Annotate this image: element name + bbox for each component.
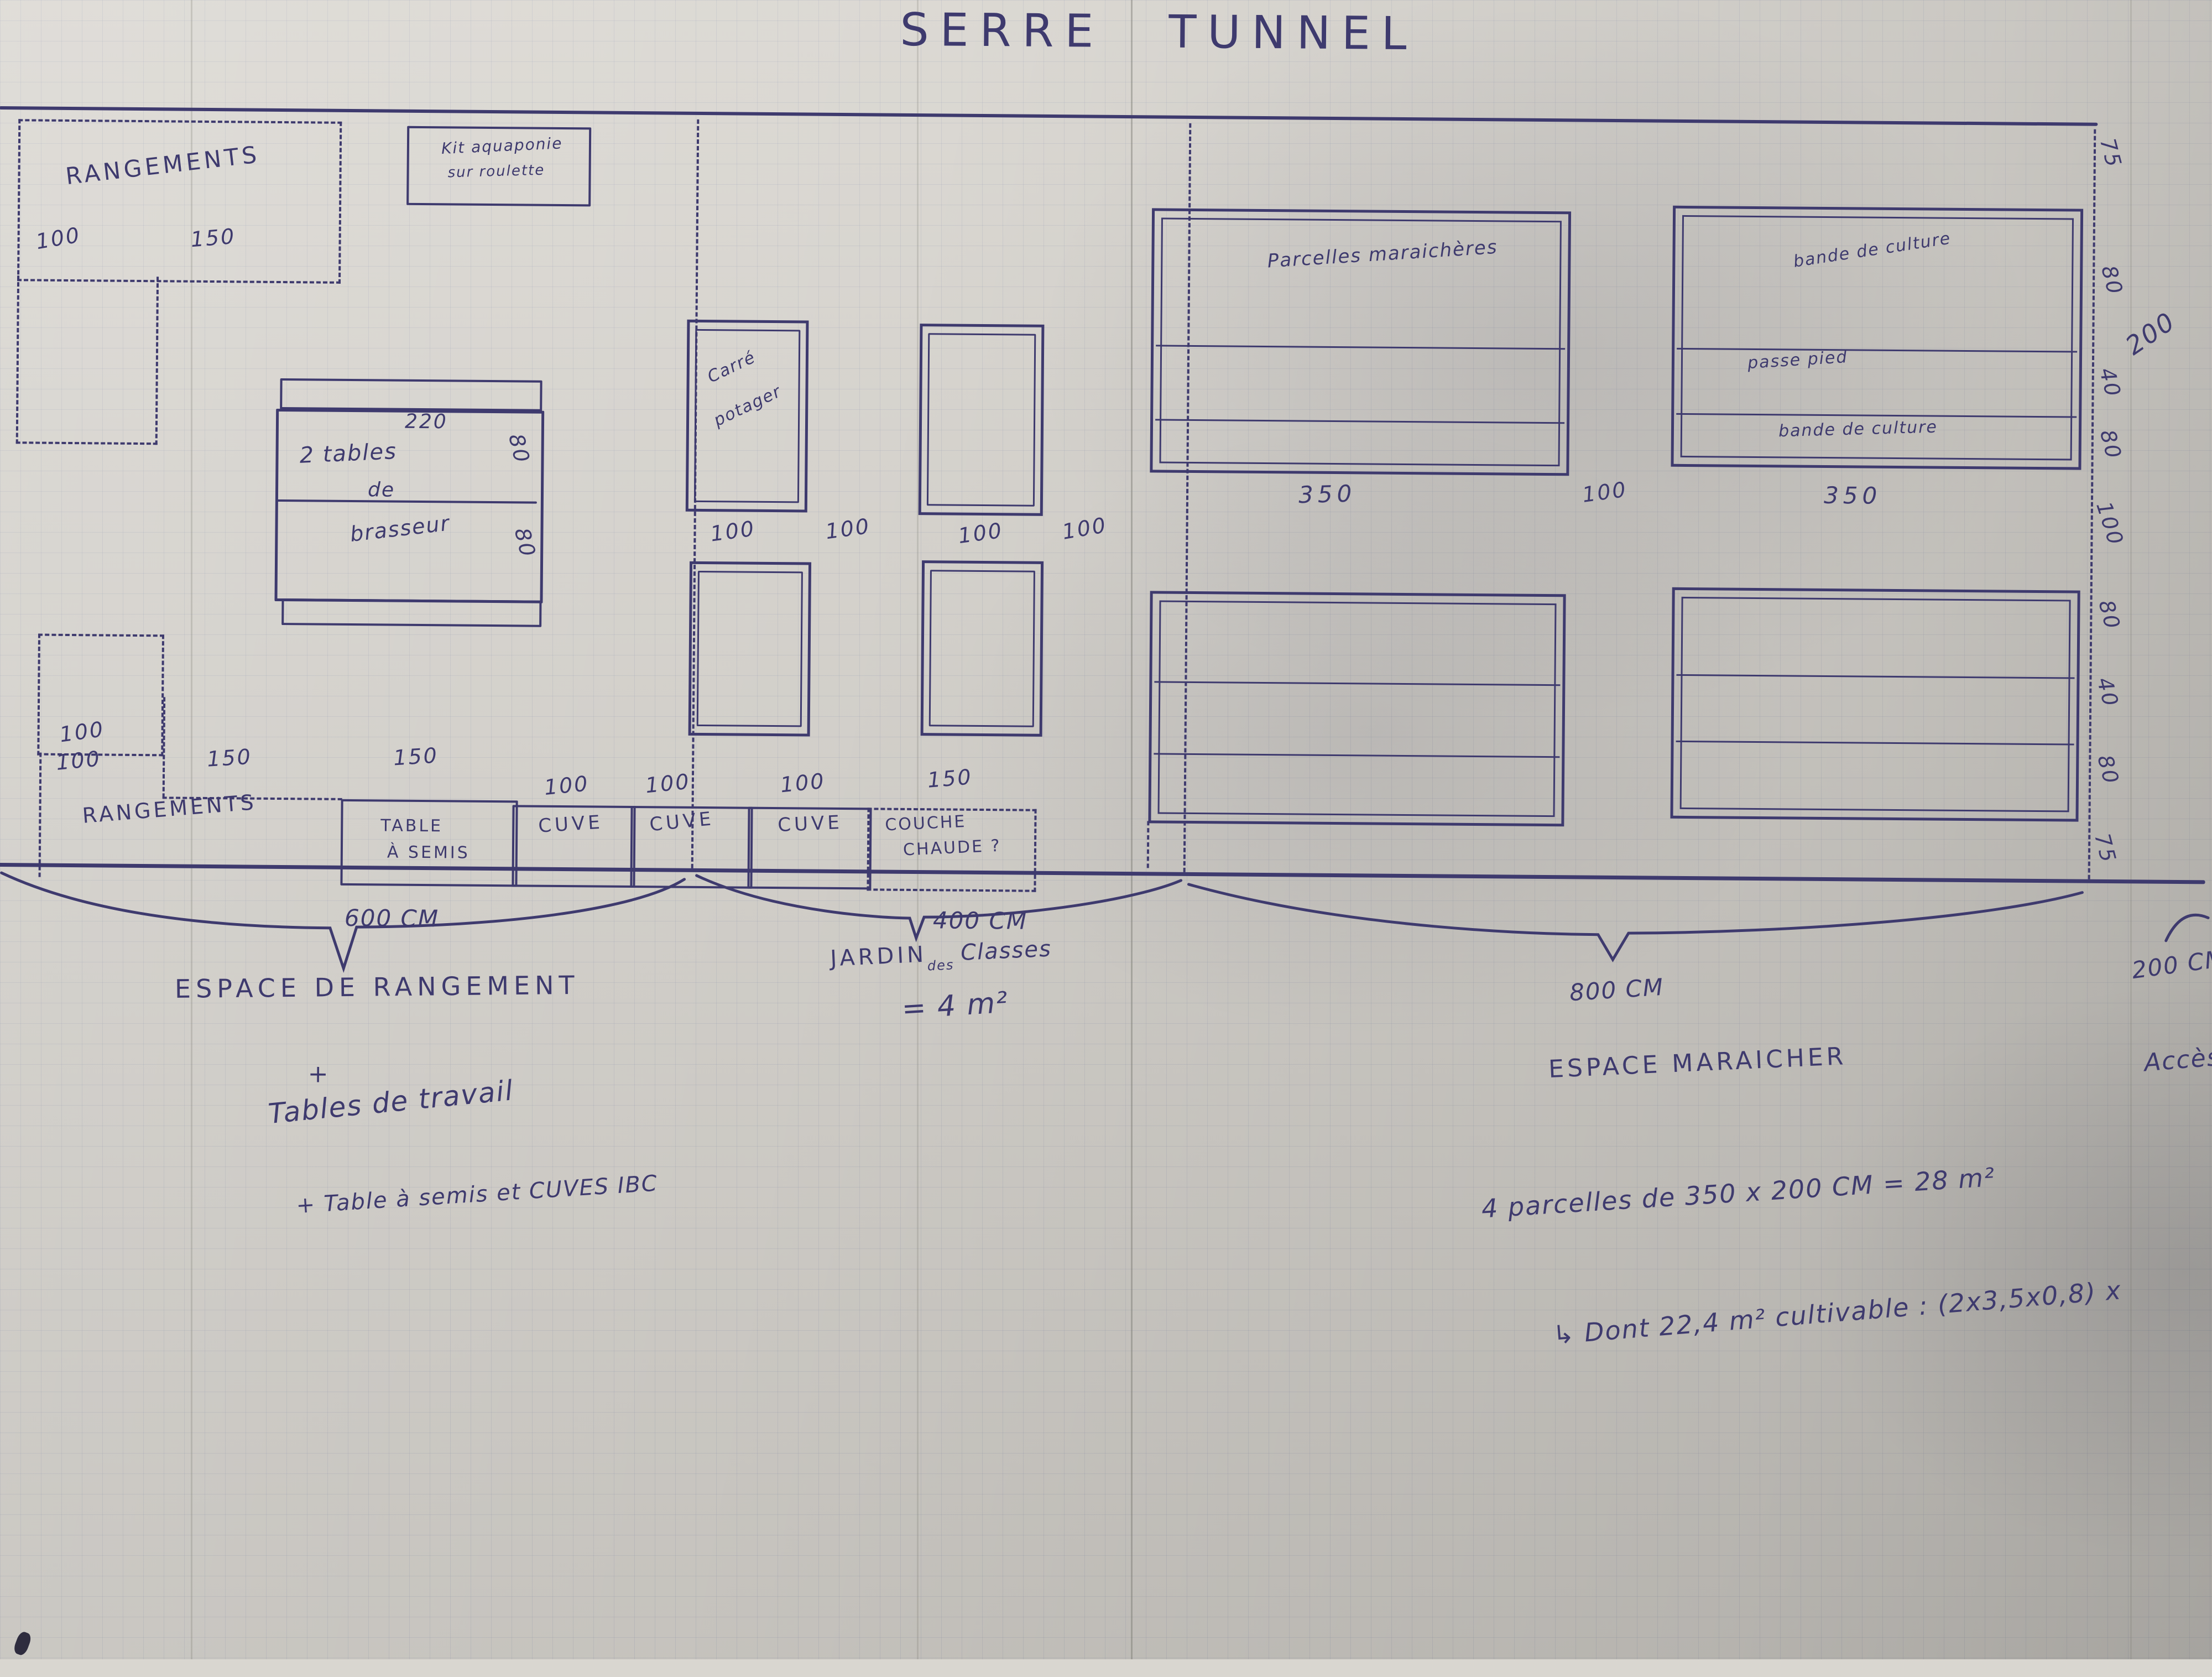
kit-aquaponie-line2: sur roulette [447, 162, 545, 181]
row-dim-150a: 150 [206, 744, 253, 772]
parcel-3-wall-tick [1147, 821, 1150, 868]
table-shelf-top [280, 378, 542, 412]
maraicher-section-name: ESPACE MARAICHER [1548, 1042, 1847, 1084]
acces-brace-label: 200 CM [2130, 945, 2212, 984]
right-dim-80-4: 80 [2093, 752, 2124, 788]
acces-name: Accès [2143, 1043, 2212, 1077]
tables-label-line1: 2 tables [299, 439, 398, 468]
jardin-dim-1: 100 [709, 516, 757, 546]
storage-bottom-dash-left [39, 753, 42, 877]
carre-potager-4 [921, 560, 1044, 737]
right-dim-80-1: 80 [2096, 263, 2127, 298]
rangement-section-name: ESPACE DE RANGEMENT [175, 970, 580, 1004]
couche-dim-150: 150 [926, 764, 973, 792]
right-dim-75-bottom: 75 [2090, 831, 2121, 866]
carre-potager-3 [688, 561, 811, 737]
brace-rangement [0, 867, 687, 983]
cuve-dim-1: 100 [543, 771, 590, 800]
maraicher-note2: ↳ Dont 22,4 m² cultivable : (2x3,5x0,8) … [1552, 1275, 2123, 1350]
brace-maraicher [1186, 879, 2085, 975]
tables-dim-220: 220 [405, 410, 448, 434]
jardin-dim-3: 100 [957, 518, 1005, 548]
storage-zone-top-dashed [17, 119, 342, 284]
cuve-dim-2: 100 [644, 769, 691, 798]
row-dim-150b: 150 [393, 743, 439, 770]
storage-top-dim-150: 150 [190, 224, 237, 252]
rangement-brace-label: 600 CM [345, 904, 439, 932]
carre-potager-2 [919, 324, 1045, 516]
storage-bottom-label: RANGEMENTS [81, 790, 257, 828]
right-dim-40-1: 40 [2095, 365, 2126, 400]
table-shelf-bottom [281, 598, 541, 627]
row-dash-vertical [163, 697, 165, 798]
table-semis-line2: À SEMIS [387, 843, 470, 863]
storage-zone-top-extension [16, 275, 159, 445]
tables-label-line2: de [368, 478, 395, 501]
right-dim-80-3: 80 [2094, 597, 2125, 633]
row-dim-100: 100 [55, 746, 102, 775]
maraicher-note1: 4 parcelles de 350 x 200 CM = 28 m² [1480, 1162, 1996, 1224]
table-semis-line1: TABLE [380, 816, 443, 836]
parcel-1-dim-350: 350 [1298, 480, 1356, 508]
right-dim-100: 100 [2091, 498, 2128, 549]
photographed-sketch: { "title": "SERRE TUNNEL", "rangement": … [0, 0, 2212, 1659]
rangement-note1: Tables de travail [267, 1074, 515, 1130]
parcel-2-dim-350: 350 [1824, 482, 1882, 509]
jardin-name-small: des [927, 957, 954, 973]
rangement-plus: + [308, 1060, 330, 1088]
cuve-label-3: CUVE [778, 811, 843, 836]
right-dim-40-2: 40 [2092, 675, 2123, 710]
jardin-dim-4: 100 [1060, 513, 1109, 544]
cuve-label-1: CUVE [538, 811, 604, 837]
brace-acces-partial [2165, 902, 2210, 947]
parcel-3 [1148, 591, 1566, 826]
rangement-note2: + Table à semis et CUVES IBC [295, 1171, 659, 1218]
jardin-area-note: = 4 m² [901, 986, 1010, 1026]
plan-title: SERRE TUNNEL [900, 4, 1418, 60]
right-dim-80-2: 80 [2095, 427, 2126, 462]
parcel-gap-dim-100: 100 [1581, 477, 1629, 507]
parcel-4 [1670, 587, 2080, 822]
jardin-dim-2: 100 [824, 514, 872, 544]
plan-ink-layer: SERRE TUNNEL RANGEMENTS 100 150 Kit aqua… [0, 0, 2212, 1676]
jardin-name-tail: Classes [960, 936, 1052, 966]
jardin-brace-label: 400 CM [933, 907, 1027, 934]
jardin-name-main: JARDIN [830, 942, 927, 972]
cuve-dim-3: 100 [779, 769, 826, 798]
maraicher-brace-label: 800 CM [1569, 973, 1665, 1007]
right-dim-75-top: 75 [2095, 136, 2126, 171]
pen-mark [12, 1631, 33, 1657]
couche-chaude-line1: COUCHE [885, 812, 967, 835]
right-dim-200-total: 200 [2120, 306, 2181, 361]
